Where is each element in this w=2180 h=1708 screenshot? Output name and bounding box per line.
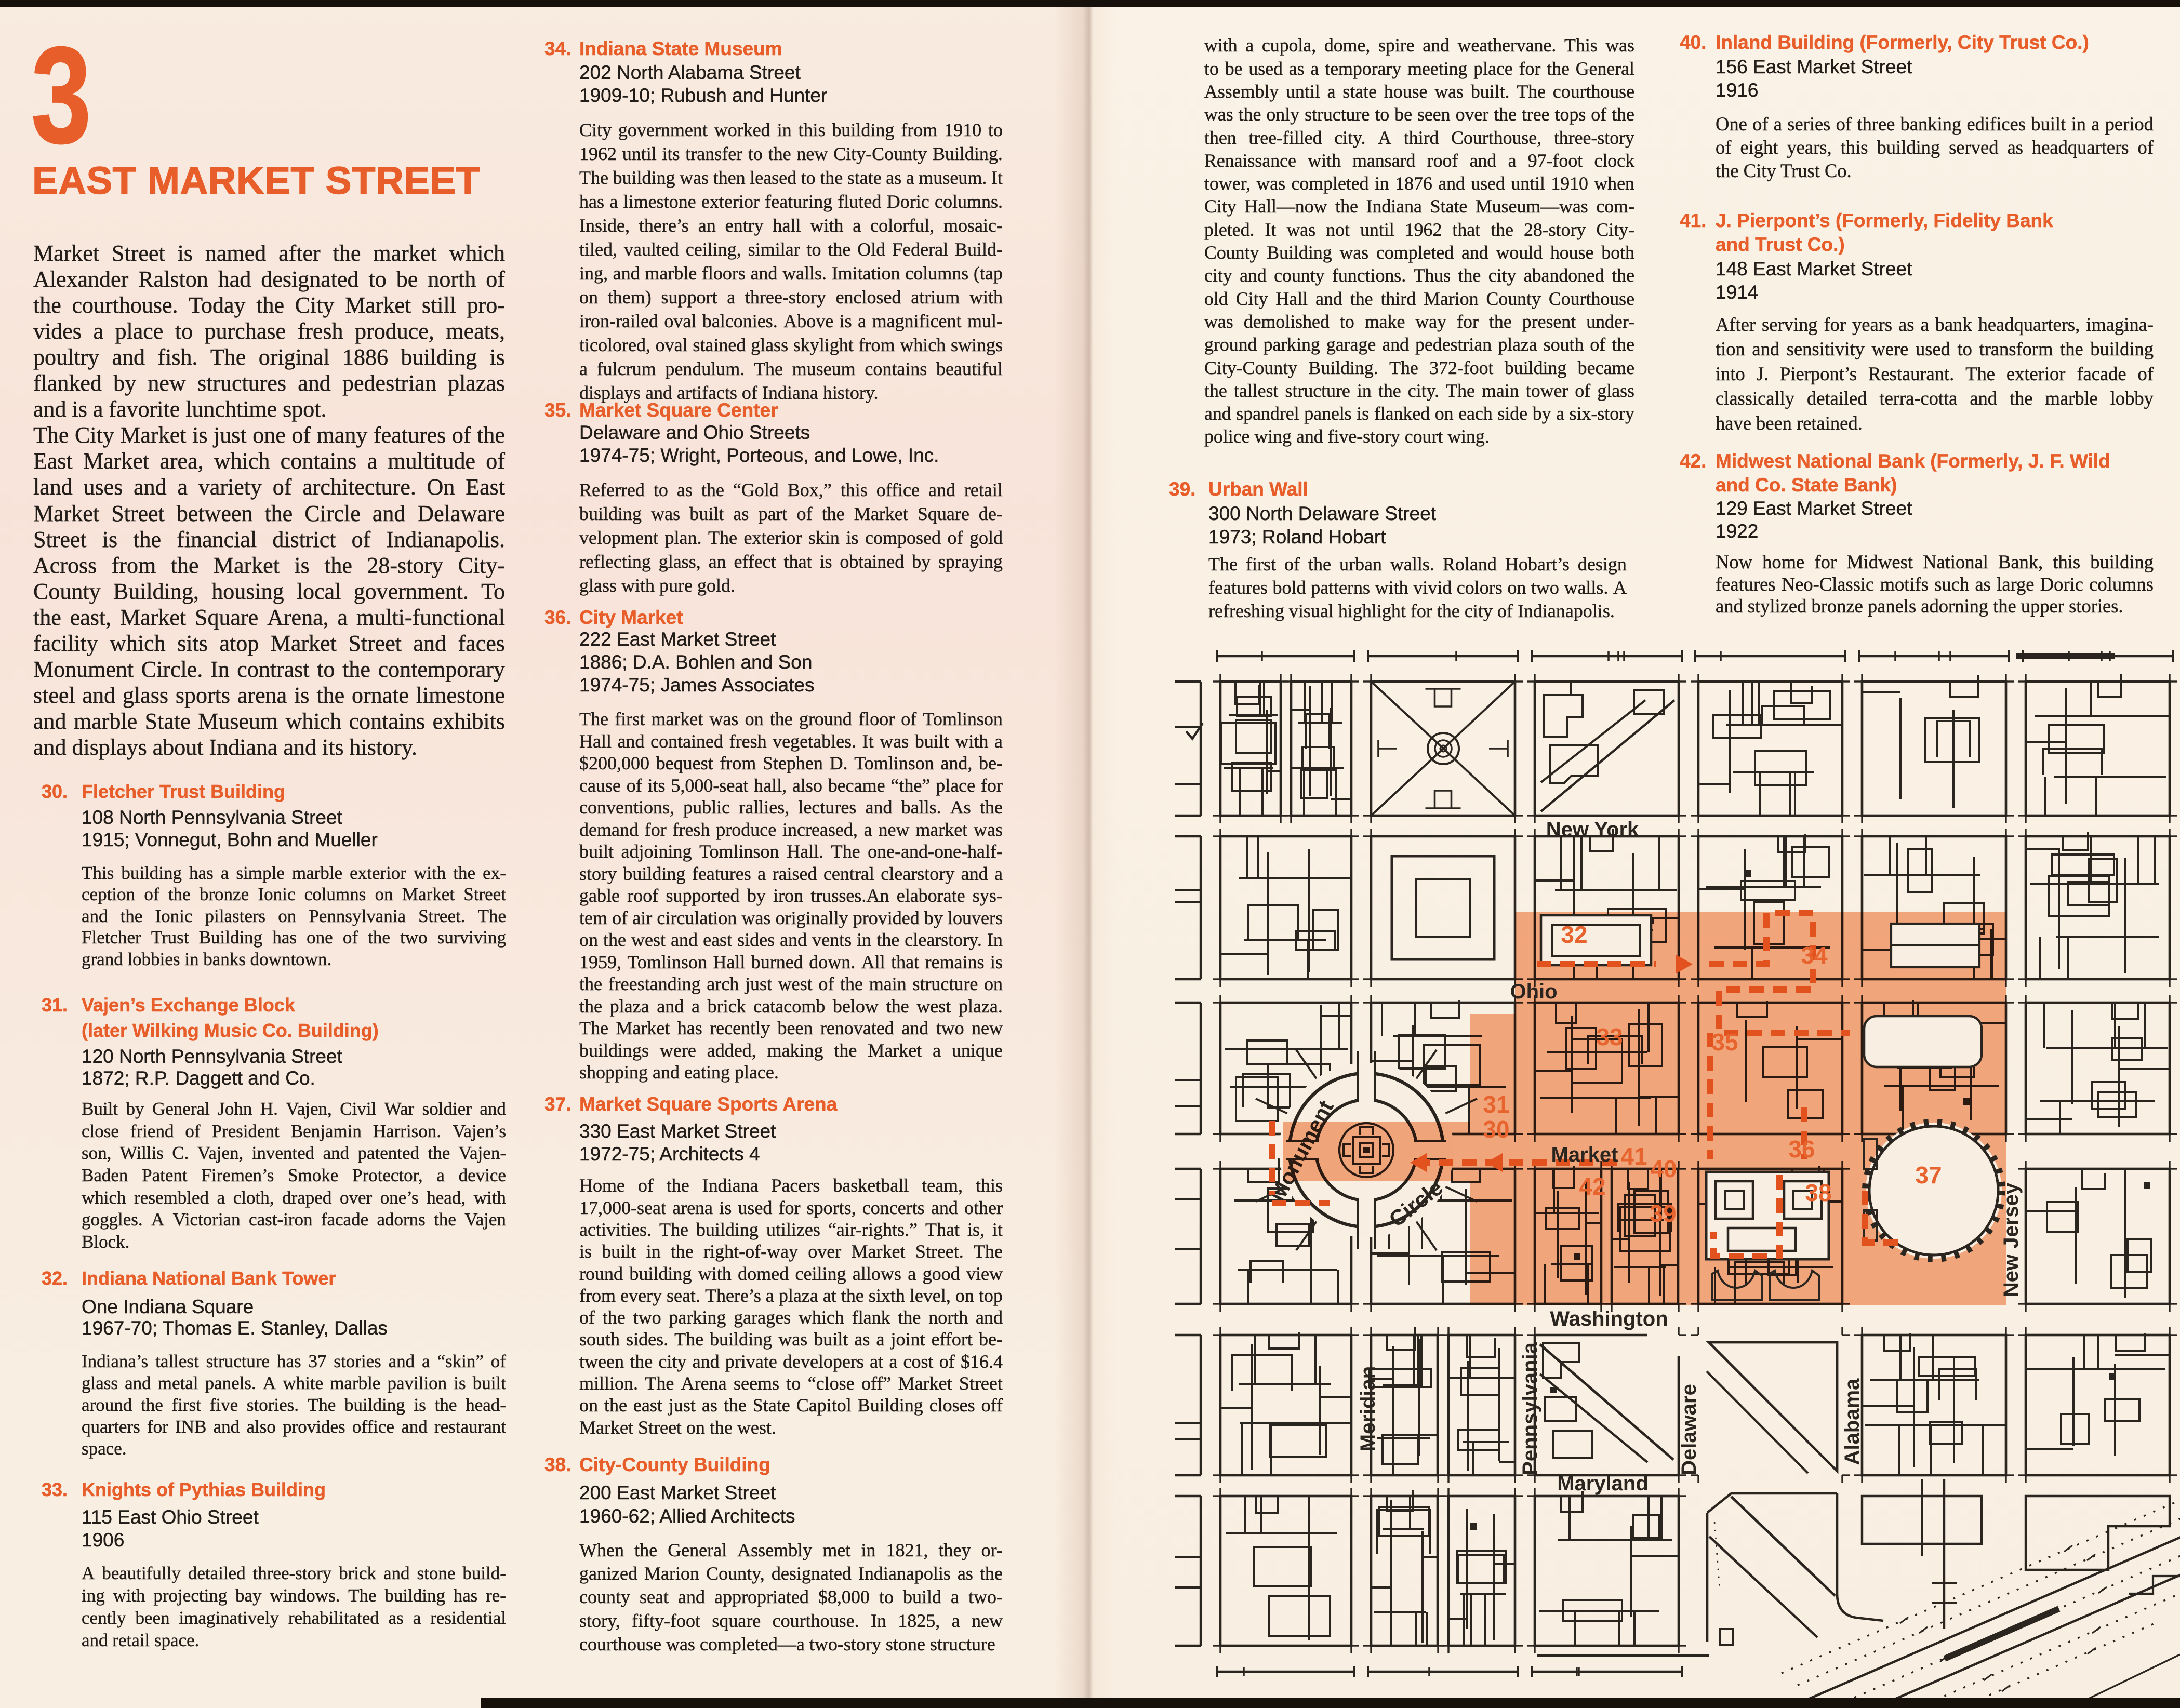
svg-text:41: 41 <box>1620 1143 1647 1170</box>
svg-text:33: 33 <box>1596 1023 1623 1050</box>
svg-text:Maryland: Maryland <box>1557 1472 1649 1495</box>
svg-text:36: 36 <box>1788 1136 1815 1163</box>
svg-text:30: 30 <box>1483 1116 1509 1143</box>
svg-text:Washington: Washington <box>1550 1307 1668 1330</box>
svg-text:37: 37 <box>1915 1162 1942 1189</box>
svg-text:Meridian: Meridian <box>1357 1366 1379 1451</box>
svg-text:New York: New York <box>1546 818 1639 841</box>
svg-text:Delaware: Delaware <box>1678 1384 1700 1475</box>
svg-text:32: 32 <box>1561 921 1587 948</box>
svg-text:34: 34 <box>1801 942 1828 969</box>
svg-text:31: 31 <box>1483 1091 1509 1118</box>
svg-text:35: 35 <box>1711 1029 1738 1056</box>
svg-text:Pennsylvania: Pennsylvania <box>1519 1342 1541 1475</box>
svg-text:40: 40 <box>1650 1155 1677 1182</box>
svg-text:42: 42 <box>1579 1173 1605 1200</box>
svg-text:38: 38 <box>1805 1179 1831 1206</box>
svg-text:39: 39 <box>1650 1200 1676 1227</box>
svg-text:Ohio: Ohio <box>1510 980 1557 1003</box>
svg-text:Alabama: Alabama <box>1841 1378 1864 1465</box>
svg-text:Market: Market <box>1551 1143 1618 1166</box>
svg-text:New Jersey: New Jersey <box>2000 1182 2023 1297</box>
